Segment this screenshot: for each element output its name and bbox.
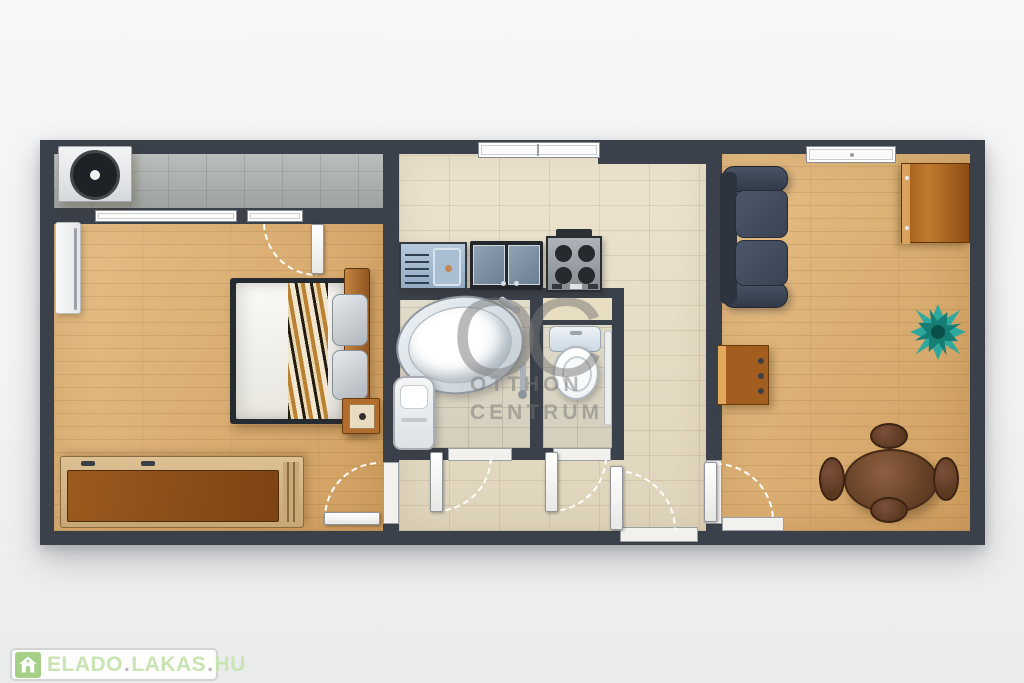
living-window xyxy=(806,146,896,163)
cabinet-hinge-2 xyxy=(514,281,519,286)
plant xyxy=(910,304,966,360)
stove-control xyxy=(552,284,562,289)
dresser xyxy=(717,345,769,405)
sink-drain xyxy=(445,265,452,272)
sink-drainer xyxy=(405,250,429,284)
cabinet-hinge xyxy=(501,281,506,286)
stove-burner-3 xyxy=(555,267,572,284)
stove-burner xyxy=(555,245,572,262)
kitchen-window xyxy=(478,142,600,158)
pillow-2 xyxy=(332,350,368,400)
cabinet-glass-door xyxy=(473,245,505,285)
dresser-knob-2 xyxy=(758,373,764,379)
kitchen-window-divider xyxy=(537,144,539,156)
sofa-cushion xyxy=(735,190,788,238)
wall-stub-top xyxy=(598,140,722,164)
balcony-door-panel xyxy=(311,224,324,274)
dresser-knob-3 xyxy=(758,388,764,394)
chair-left xyxy=(819,457,845,501)
kitchen-sink xyxy=(399,242,467,290)
nightstand-knob xyxy=(359,413,366,420)
bath-cabinet-lid xyxy=(400,385,428,409)
kitchen-glass-cabinet xyxy=(470,241,543,290)
bed-zebra-runner xyxy=(288,283,328,419)
balcony-window-2 xyxy=(247,210,303,222)
logo-dot-1: . xyxy=(124,653,130,677)
sofa-cushion-2 xyxy=(735,240,788,286)
desk-hinge-2 xyxy=(905,226,909,230)
wc-shelf-edge xyxy=(543,320,612,325)
nightstand xyxy=(342,398,380,434)
plant-center xyxy=(931,325,945,339)
wardrobe-handle-2 xyxy=(141,461,155,466)
corner-desk xyxy=(901,163,970,243)
cabinet-glass-door-2 xyxy=(508,245,540,285)
door-knob xyxy=(518,390,527,399)
pillow xyxy=(332,294,368,346)
site-logo: ELADO . LAKAS . HU xyxy=(10,648,218,681)
wardrobe-side-panels xyxy=(283,462,299,522)
logo-dot-2: . xyxy=(207,653,213,677)
dresser-knob xyxy=(758,358,764,364)
ac-fan-hub xyxy=(90,170,100,180)
logo-word-1: ELADO xyxy=(47,653,123,677)
sink-basin xyxy=(433,248,461,286)
chair-right xyxy=(933,457,959,501)
chair-bottom xyxy=(870,497,908,523)
wall-bath-wc xyxy=(530,288,543,460)
wardrobe xyxy=(60,456,304,528)
bath-cabinet xyxy=(393,376,435,450)
bath-cabinet-slot xyxy=(401,418,427,422)
sofa-backrest xyxy=(720,172,737,304)
wardrobe-front xyxy=(67,470,279,522)
ac-fan-icon xyxy=(70,150,120,200)
chair-top xyxy=(870,423,908,449)
stove-control-2 xyxy=(570,284,582,289)
bath-faucet-knob xyxy=(512,306,520,314)
entry-door-panel xyxy=(610,466,623,530)
toilet-flush xyxy=(570,331,582,335)
bedroom-doorway xyxy=(383,462,399,524)
logo-word-2: LAKAS xyxy=(131,653,206,677)
air-conditioner xyxy=(58,146,132,202)
toilet-bowl xyxy=(553,346,599,400)
toilet-seat xyxy=(562,356,592,392)
wc-door-panel xyxy=(545,452,558,512)
stove-burner-2 xyxy=(578,245,595,262)
floorplan-image: OC OTTHON CENTRUM ELADO . LAKAS . HU xyxy=(0,0,1024,683)
bathroom-door-panel xyxy=(430,452,443,512)
wardrobe-handle xyxy=(81,461,95,466)
radiator xyxy=(55,222,81,314)
logo-house-icon xyxy=(15,652,41,678)
logo-text: ELADO . LAKAS . HU xyxy=(47,653,246,677)
living-door-panel xyxy=(704,462,717,522)
living-window-latch xyxy=(850,153,854,157)
bathroom-wall-right xyxy=(612,288,624,460)
balcony-window xyxy=(95,210,237,222)
bedroom-door-panel xyxy=(324,512,380,525)
logo-word-3: HU xyxy=(215,653,246,677)
wc-pipe xyxy=(604,330,612,426)
stove-burner-4 xyxy=(578,267,595,284)
stove xyxy=(546,236,602,292)
stove-control-3 xyxy=(588,284,598,289)
radiator-pipe xyxy=(74,228,77,310)
wc-shelf xyxy=(543,298,612,322)
desk-hinge xyxy=(905,176,909,180)
